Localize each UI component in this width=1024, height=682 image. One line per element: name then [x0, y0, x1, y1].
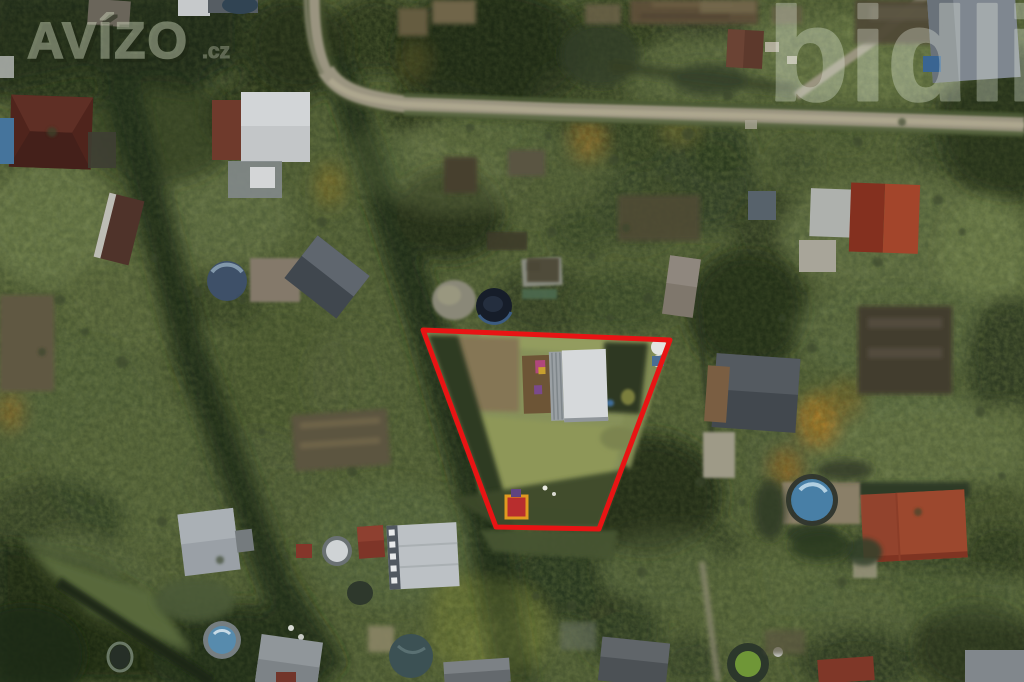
svg-text:.cz: .cz: [202, 40, 230, 63]
svg-text:bidli: bidli: [768, 0, 1024, 128]
svg-text:AVÍZO: AVÍZO: [27, 12, 189, 69]
